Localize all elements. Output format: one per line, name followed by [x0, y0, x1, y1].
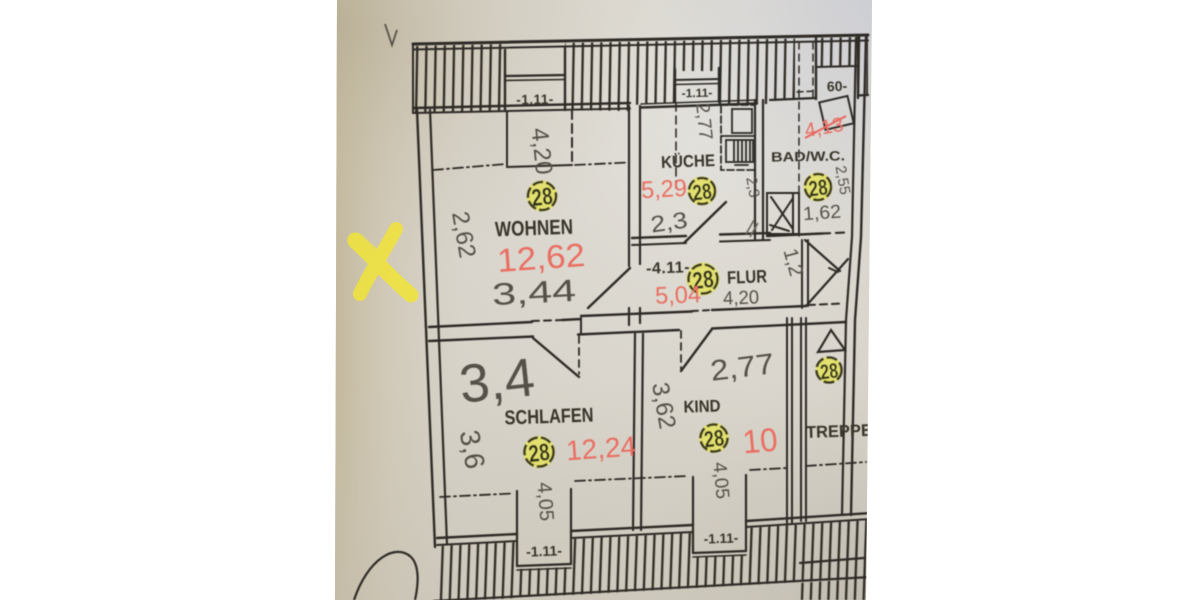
svg-text:10: 10 — [741, 421, 779, 461]
svg-text:28: 28 — [807, 174, 829, 201]
svg-text:SCHLAFEN: SCHLAFEN — [504, 404, 594, 429]
svg-text:4,20: 4,20 — [723, 287, 760, 309]
svg-text:2,3: 2,3 — [742, 175, 762, 198]
svg-text:KÜCHE: KÜCHE — [661, 151, 716, 172]
svg-text:KIND: KIND — [683, 396, 721, 416]
svg-text:TREPPE: TREPPE — [806, 421, 873, 442]
svg-text:3,44: 3,44 — [491, 273, 577, 312]
svg-text:1,62: 1,62 — [802, 202, 841, 226]
svg-text:-1.11-: -1.11- — [516, 92, 554, 108]
svg-text:28: 28 — [691, 178, 713, 205]
svg-text:5,04: 5,04 — [655, 281, 702, 310]
svg-text:28: 28 — [530, 183, 554, 212]
svg-text:4,05: 4,05 — [533, 481, 558, 521]
svg-text:FLUR: FLUR — [727, 266, 768, 287]
svg-text:-4.11-: -4.11- — [646, 259, 690, 278]
svg-text:60-: 60- — [827, 78, 848, 95]
svg-text:-1.11-: -1.11- — [682, 86, 713, 101]
svg-text:12,24: 12,24 — [565, 431, 637, 467]
svg-text:4,20: 4,20 — [526, 127, 558, 176]
svg-text:3,4: 3,4 — [457, 347, 538, 415]
svg-text:5,29: 5,29 — [640, 175, 687, 204]
svg-text:28: 28 — [703, 424, 726, 452]
svg-text:2,77: 2,77 — [691, 102, 716, 141]
svg-text:2,3: 2,3 — [649, 207, 689, 238]
svg-text:28: 28 — [819, 359, 840, 384]
svg-text:-1.11-: -1.11- — [526, 542, 563, 559]
svg-text:4,05: 4,05 — [708, 461, 732, 500]
svg-text:-1.11-: -1.11- — [704, 530, 739, 546]
svg-text:BAD/W.C.: BAD/W.C. — [771, 148, 845, 164]
svg-text:28: 28 — [527, 439, 551, 468]
